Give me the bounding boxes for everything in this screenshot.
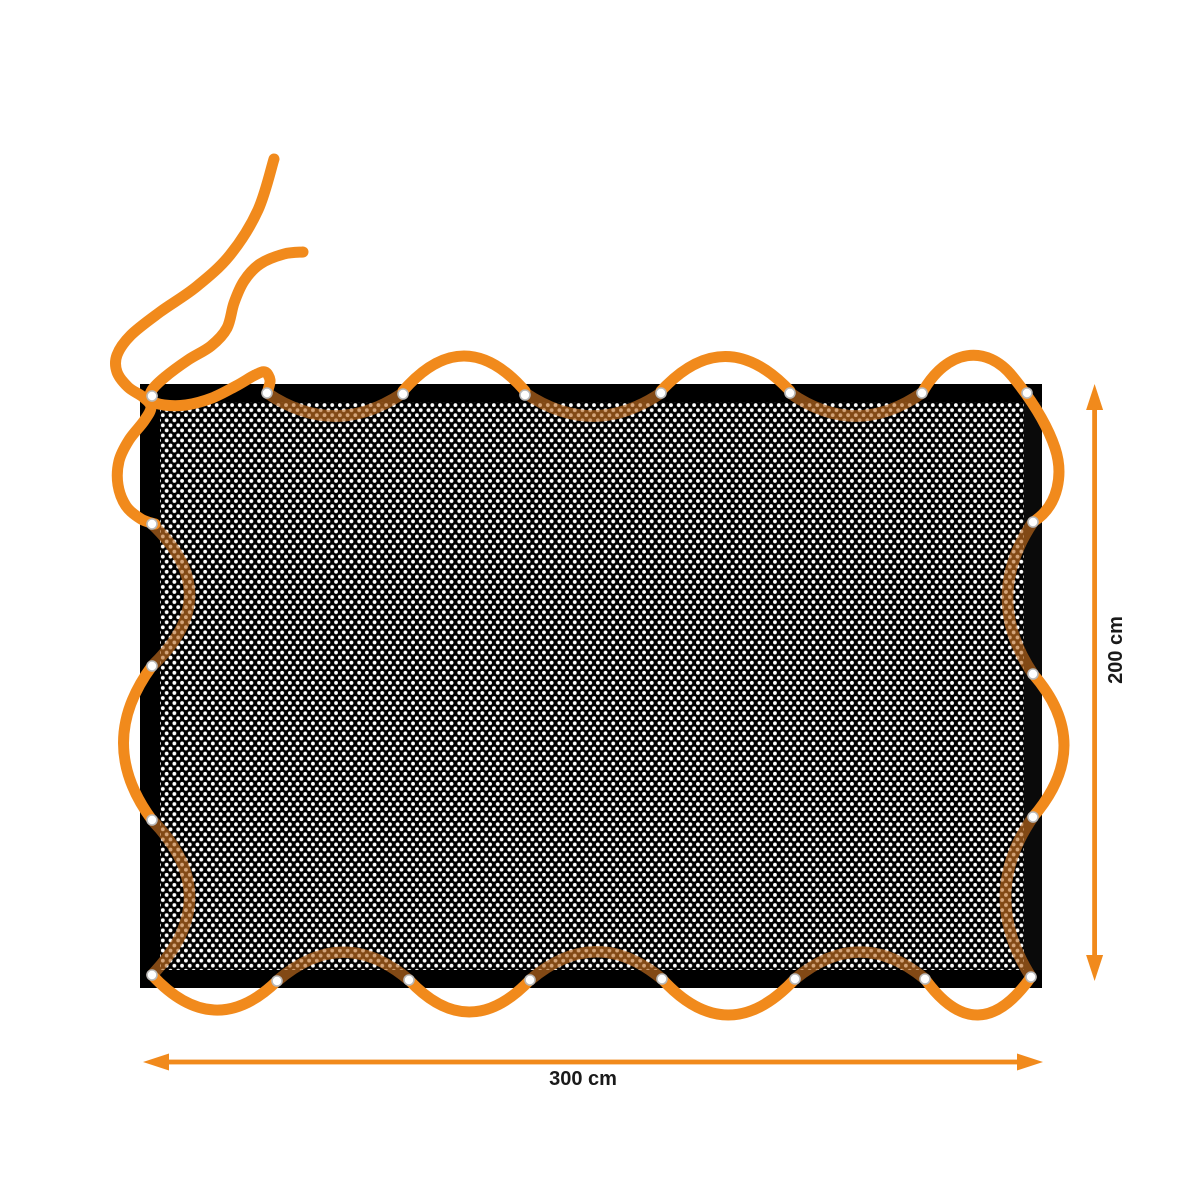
svg-text:200 cm: 200 cm <box>1105 616 1127 684</box>
svg-text:300 cm: 300 cm <box>549 1068 617 1090</box>
